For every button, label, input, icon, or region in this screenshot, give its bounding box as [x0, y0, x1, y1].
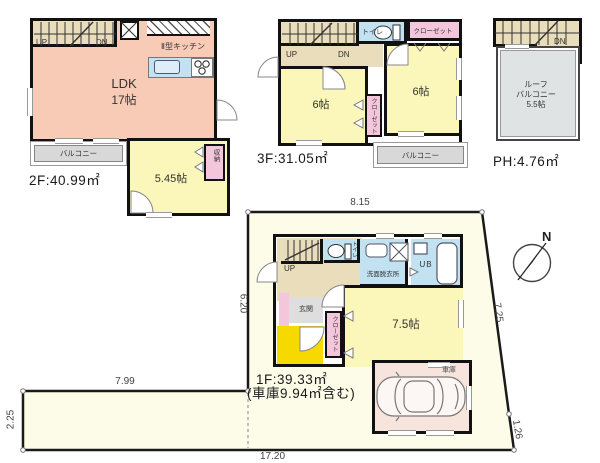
window-marker: [458, 300, 464, 328]
stove-box: [191, 58, 213, 77]
garage-door-opening: [426, 430, 454, 436]
3f-dn-label: DN: [338, 50, 350, 59]
ph-roof-balcony-label: ルーフ バルコニー 5.5帖: [503, 80, 569, 110]
dim-top: 8.15: [335, 197, 385, 208]
3f-balcony-label: バルコニー: [377, 146, 464, 164]
1f-stairs: [281, 239, 323, 264]
window-marker: [27, 88, 33, 116]
floorplan-sheet: バルコニー バルコニー: [0, 0, 600, 463]
2f-kitchen-label: Ⅱ型キッチン: [150, 41, 216, 52]
2f-dn-label: DN: [96, 38, 108, 47]
3f-closet-mid-label: クローゼット: [369, 98, 378, 134]
2f-void-hatch: [147, 21, 210, 36]
1f-subtitle: (車庫9.94㎡含む): [247, 382, 355, 402]
ph-stairs: [493, 18, 582, 47]
3f-balcony: バルコニー: [373, 142, 468, 168]
window-marker: [456, 58, 462, 80]
1f-porch: [277, 326, 323, 364]
window-marker: [146, 212, 172, 218]
ph-dn-label: DN: [554, 37, 566, 46]
1f-washroom-label: 洗面脱衣所: [360, 268, 406, 278]
window-marker: [93, 138, 119, 144]
garage-door-opening: [388, 430, 416, 436]
window-marker: [55, 138, 83, 144]
3f-title: 3F:31.05㎡: [257, 147, 328, 167]
window-marker: [296, 140, 322, 146]
3f-room-b-label: 6帖: [398, 83, 444, 99]
2f-ldk-label: LDK 17帖: [88, 76, 160, 108]
window-marker: [505, 44, 529, 49]
window-marker: [456, 96, 462, 120]
compass-north-label: N: [542, 229, 551, 244]
1f-washroom: [360, 239, 408, 287]
1f-room-size-label: 7.5帖: [378, 316, 434, 332]
window-marker: [376, 233, 394, 239]
ph-roof-balcony-size: 5.5帖: [503, 100, 569, 110]
3f-up-label: UP: [286, 50, 297, 59]
ph-title: PH:4.76㎡: [493, 150, 559, 170]
2f-storage-label: 収納: [210, 149, 220, 162]
2f-balcony-label: バルコニー: [34, 145, 123, 162]
3f-room-a-label: 6帖: [296, 96, 346, 112]
1f-shoe-cabinet: [279, 293, 289, 326]
1f-garage-label: 車庫: [442, 365, 456, 375]
window-marker: [398, 131, 424, 137]
window-marker: [424, 233, 442, 239]
refrigerator-space: [120, 21, 139, 40]
dim-strip-left: 2.25: [6, 395, 17, 445]
3f-toilet-label: トイレ: [362, 27, 383, 37]
1f-closet-label: クローゼット: [330, 316, 339, 352]
2f-ldk-size: 17帖: [88, 91, 160, 108]
dim-bottom: 17.20: [245, 451, 300, 462]
2f-up-label: UP: [36, 38, 47, 47]
1f-bath-label: UB: [415, 260, 437, 269]
garage-side-opening: [466, 386, 472, 410]
kitchen-sink: [154, 60, 180, 74]
2f-room-size-label: 5.45帖: [140, 170, 202, 186]
1f-toilet-label: トイレ: [350, 241, 358, 258]
dim-left: 6.20: [238, 279, 249, 329]
2f-balcony: バルコニー: [30, 141, 127, 166]
dim-strip-top: 7.99: [100, 376, 150, 387]
1f-up-label: UP: [284, 264, 295, 273]
1f-entrance-label: 玄関: [289, 304, 323, 314]
2f-title: 2F:40.99㎡: [29, 169, 100, 189]
1f-garage: [372, 360, 472, 434]
3f-stairs: [281, 22, 359, 46]
3f-closet-top-label: クローゼット: [408, 25, 458, 35]
